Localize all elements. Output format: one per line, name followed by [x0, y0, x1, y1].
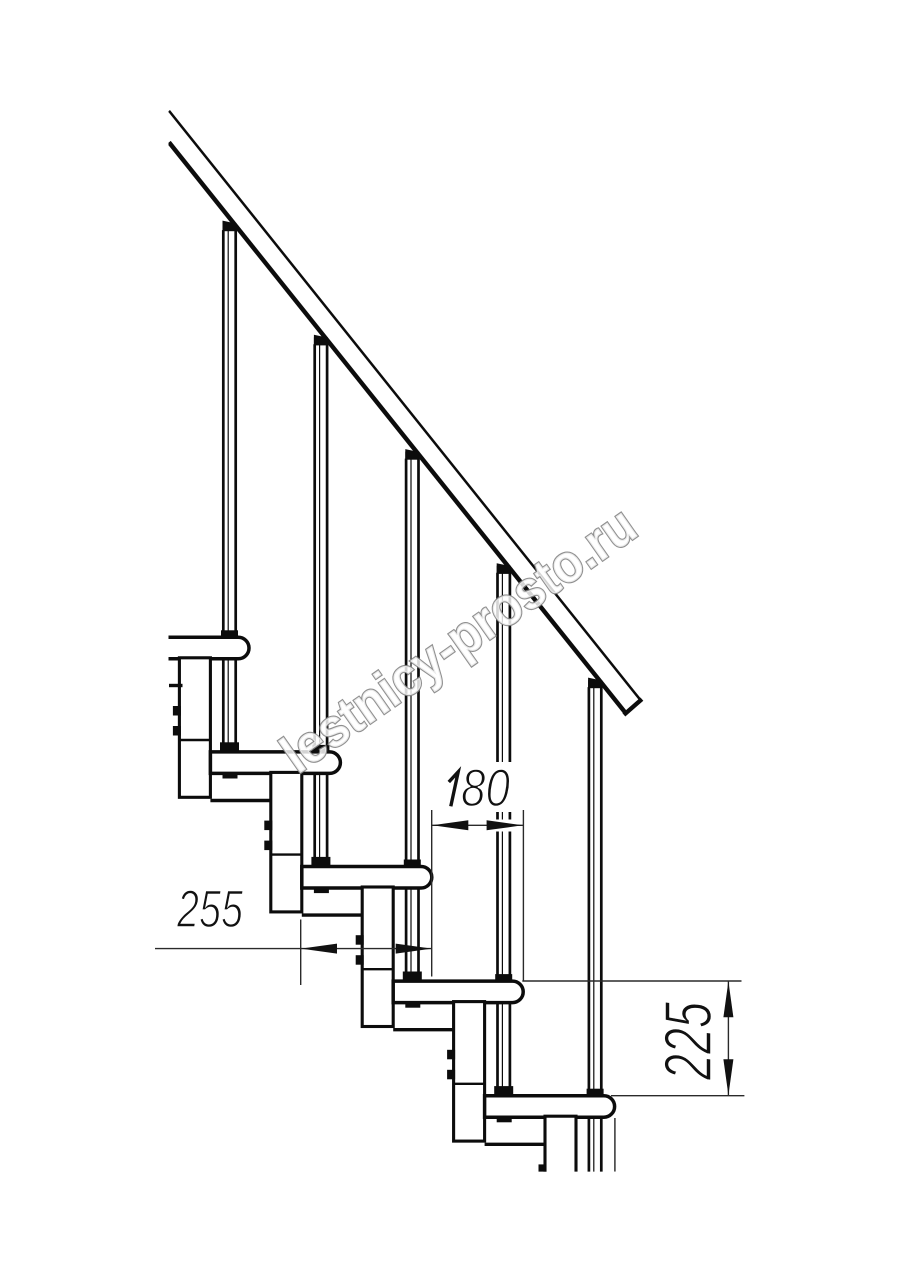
- svg-text:225: 225: [651, 1001, 726, 1080]
- svg-text:80: 80: [461, 759, 510, 818]
- svg-text:255: 255: [176, 880, 243, 939]
